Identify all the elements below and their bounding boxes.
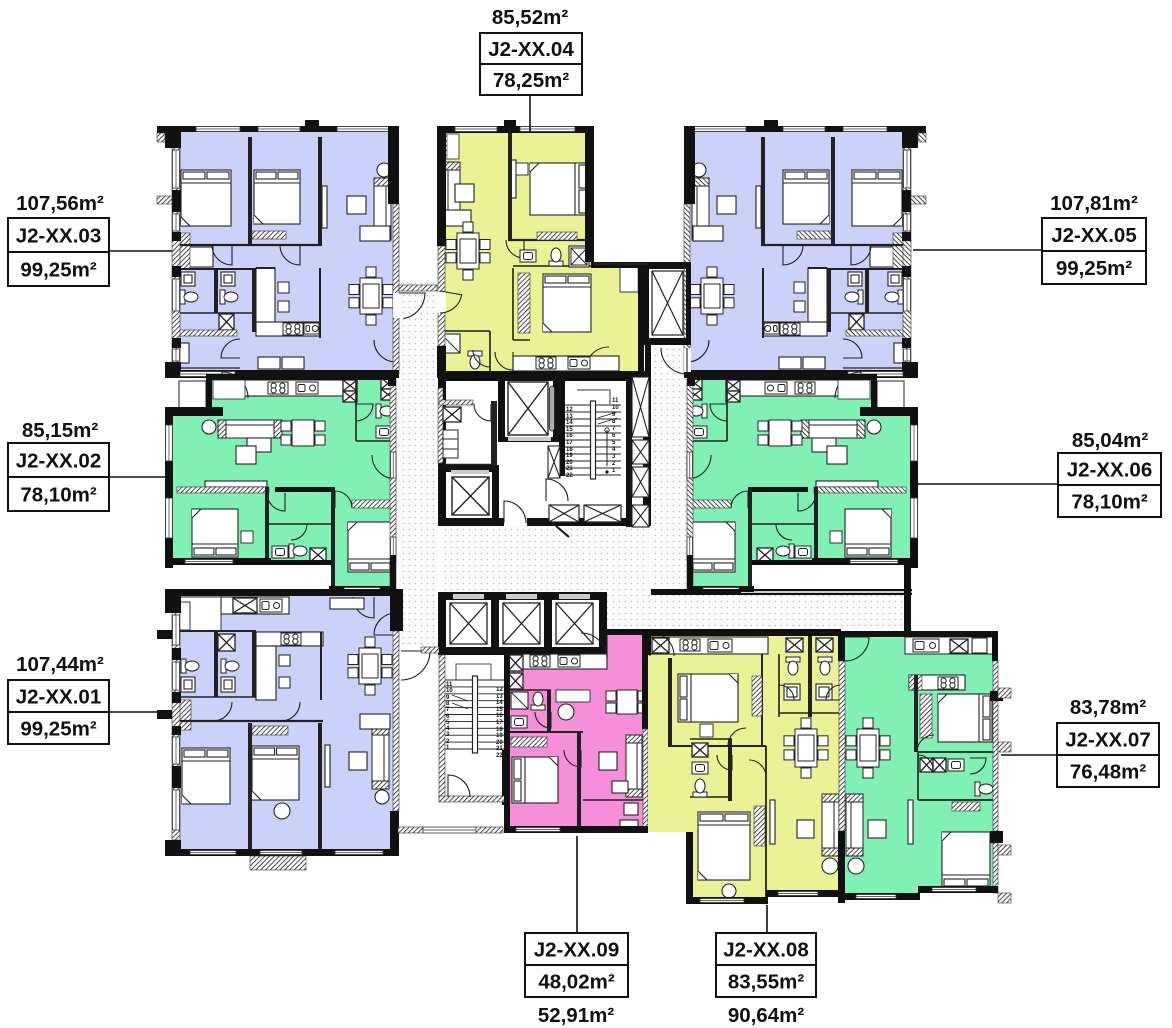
svg-text:52,91m²: 52,91m² — [538, 1004, 615, 1027]
svg-text:76,48m²: 76,48m² — [1070, 761, 1147, 784]
svg-text:48,02m²: 48,02m² — [538, 971, 615, 994]
svg-text:J2-XX.05: J2-XX.05 — [1051, 224, 1136, 247]
svg-text:10: 10 — [446, 688, 453, 694]
svg-text:11: 11 — [612, 398, 619, 404]
svg-text:99,25m²: 99,25m² — [20, 718, 97, 741]
svg-text:78,25m²: 78,25m² — [493, 69, 570, 92]
svg-text:22: 22 — [496, 753, 503, 759]
svg-text:J2-XX.04: J2-XX.04 — [488, 38, 574, 61]
svg-text:83,55m²: 83,55m² — [728, 971, 805, 994]
svg-text:90,64m²: 90,64m² — [728, 1004, 805, 1027]
svg-text:78,10m²: 78,10m² — [1071, 491, 1148, 514]
svg-text:J2-XX.08: J2-XX.08 — [723, 939, 808, 962]
svg-text:19: 19 — [566, 453, 573, 459]
svg-text:J2-XX.02: J2-XX.02 — [16, 450, 101, 473]
svg-text:85,15m²: 85,15m² — [22, 419, 99, 442]
svg-text:10: 10 — [612, 405, 619, 411]
svg-text:19: 19 — [496, 733, 503, 739]
svg-text:16: 16 — [496, 713, 503, 719]
svg-text:83,78m²: 83,78m² — [1070, 696, 1147, 719]
svg-text:14: 14 — [496, 700, 503, 706]
svg-text:99,25m²: 99,25m² — [20, 259, 97, 282]
svg-text:22: 22 — [566, 473, 573, 479]
svg-text:21: 21 — [496, 746, 503, 752]
svg-text:J2-XX.09: J2-XX.09 — [534, 939, 619, 962]
svg-text:J2-XX.01: J2-XX.01 — [16, 686, 101, 709]
svg-text:J2-XX.06: J2-XX.06 — [1067, 459, 1152, 482]
svg-text:17: 17 — [496, 720, 503, 726]
svg-text:17: 17 — [566, 440, 573, 446]
svg-text:14: 14 — [566, 420, 573, 426]
svg-text:16: 16 — [566, 433, 573, 439]
svg-text:J2-XX.07: J2-XX.07 — [1065, 729, 1150, 752]
svg-text:21: 21 — [566, 466, 573, 472]
svg-text:107,56m²: 107,56m² — [16, 192, 104, 215]
svg-text:107,81m²: 107,81m² — [1050, 192, 1138, 215]
svg-text:12: 12 — [566, 407, 573, 413]
svg-text:12: 12 — [496, 687, 503, 693]
svg-text:85,04m²: 85,04m² — [1072, 429, 1149, 452]
svg-text:85,52m²: 85,52m² — [492, 6, 569, 29]
svg-text:107,44m²: 107,44m² — [16, 653, 104, 676]
svg-text:78,10m²: 78,10m² — [20, 484, 97, 507]
svg-text:99,25m²: 99,25m² — [1056, 257, 1133, 280]
svg-text:J2-XX.03: J2-XX.03 — [16, 225, 101, 248]
